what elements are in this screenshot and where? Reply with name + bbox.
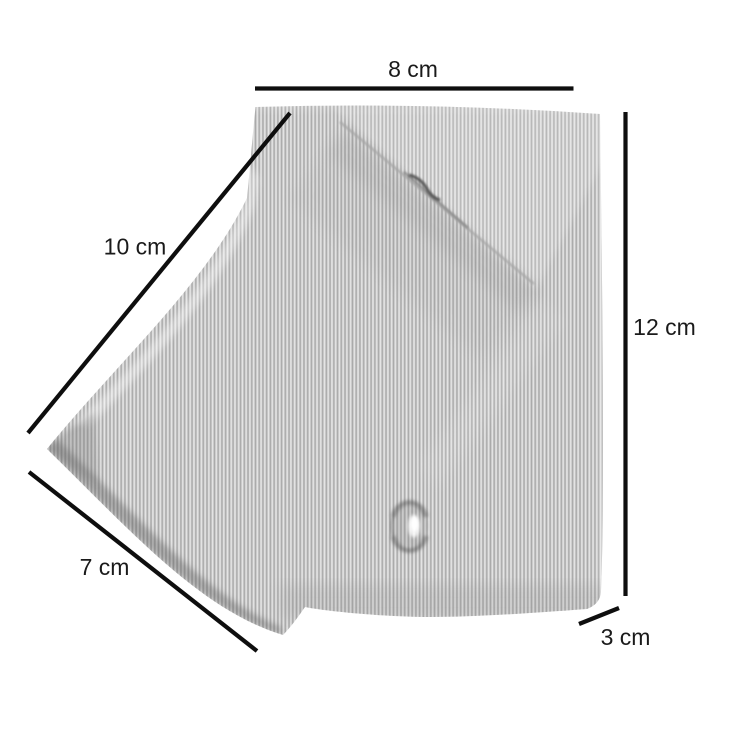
svg-text:8 cm: 8 cm: [388, 56, 438, 82]
svg-text:7 cm: 7 cm: [80, 554, 130, 580]
svg-text:12 cm: 12 cm: [633, 314, 696, 340]
svg-text:3 cm: 3 cm: [601, 624, 651, 650]
svg-text:10 cm: 10 cm: [104, 234, 167, 260]
